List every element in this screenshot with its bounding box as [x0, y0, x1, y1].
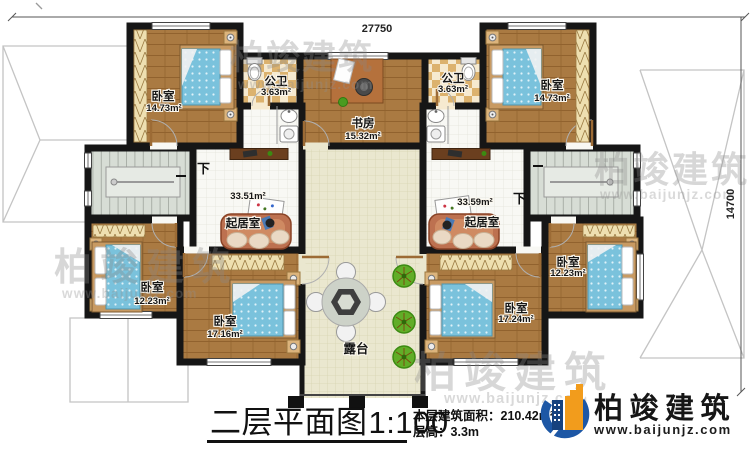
sideboard [432, 149, 490, 160]
wardrobe [93, 225, 145, 237]
bed [429, 280, 495, 338]
logo-company-name: 柏竣建筑 [594, 391, 736, 425]
stairs-left-rail [106, 167, 186, 197]
svg-text:www.baijunjz.com: www.baijunjz.com [599, 187, 736, 202]
dim-right-value: 14700 [725, 189, 737, 220]
plant [393, 346, 415, 368]
window [152, 23, 210, 30]
area-bedroom-bl: 17.16m² [207, 329, 242, 340]
nightstand [287, 340, 300, 353]
logo-building-blue [552, 400, 563, 430]
roof-porch-left [70, 318, 188, 402]
wardrobe [576, 30, 589, 142]
floor-plan-page: 卧室 14.73m² 公卫 3.63m² 书房 15.32m² 公卫 3.63m… [0, 0, 750, 451]
bed [586, 242, 636, 312]
svg-text:www.baijunjz.com: www.baijunjz.com [237, 77, 374, 92]
label-stairs-down-right: 下 [513, 191, 526, 206]
bed [180, 45, 234, 109]
area-bedroom-tr: 14.73m² [534, 93, 569, 104]
label-living-r: 起居室 [464, 215, 500, 229]
person-head [443, 221, 452, 230]
floor-area-line: 本层建筑面积：210.42m² [413, 408, 554, 423]
window [85, 191, 92, 206]
wardrobe [134, 30, 147, 142]
label-bedroom-br: 卧室 [505, 301, 528, 315]
logo-website: www.baijunjz.com [593, 422, 732, 437]
area-living-r: 33.59m² [457, 197, 492, 208]
watermark-top: 柏竣建筑www.baijunjz.com [230, 38, 374, 92]
label-bedroom-tr: 卧室 [541, 78, 564, 92]
sideboard [230, 149, 288, 160]
window [508, 23, 566, 30]
plant [393, 265, 415, 287]
floor-height-line: 层高：3.3m [413, 424, 479, 439]
label-stairs-down-left: 下 [197, 161, 210, 176]
nightstand [486, 31, 499, 44]
title-underline [207, 440, 407, 443]
area-bath-r: 3.63m² [438, 84, 468, 95]
floor-plan-canvas: 卧室 14.73m² 公卫 3.63m² 书房 15.32m² 公卫 3.63m… [0, 0, 750, 451]
nightstand [224, 108, 237, 121]
svg-text:柏竣建筑: 柏竣建筑 [414, 349, 614, 396]
roof-tick [36, 3, 42, 9]
plant [393, 311, 415, 333]
window [100, 312, 152, 319]
dim-top-value: 27750 [362, 23, 393, 35]
person-head [266, 219, 275, 228]
area-living-l: 33.51m² [230, 191, 265, 202]
wardrobe [440, 255, 512, 270]
area-bedroom-mr: 12.23m² [550, 268, 585, 279]
window [207, 359, 271, 366]
window [637, 254, 644, 300]
desk-plant [339, 98, 348, 107]
window [85, 153, 92, 168]
title-block: 二层平面图1:100 本层建筑面积：210.42m² 层高：3.3m [207, 405, 554, 443]
svg-text:www.baijunjz.com: www.baijunjz.com [61, 286, 198, 301]
area-bedroom-tl: 14.73m² [146, 103, 181, 114]
label-bedroom-mr: 卧室 [557, 255, 580, 269]
label-terrace: 露台 [343, 341, 368, 356]
svg-text:柏竣建筑: 柏竣建筑 [594, 149, 750, 190]
label-bedroom-bl: 卧室 [214, 314, 237, 328]
area-bedroom-br: 17.24m² [498, 314, 533, 325]
nightstand [486, 108, 499, 121]
label-living-l: 起居室 [225, 216, 261, 230]
svg-text:柏竣建筑: 柏竣建筑 [54, 247, 238, 289]
terrace-plants [393, 265, 415, 368]
label-study: 书房 [352, 116, 375, 130]
wardrobe [583, 225, 635, 237]
svg-text:柏竣建筑: 柏竣建筑 [230, 38, 374, 77]
label-bedroom-tl: 卧室 [152, 89, 175, 103]
area-study: 15.32m² [345, 131, 380, 142]
